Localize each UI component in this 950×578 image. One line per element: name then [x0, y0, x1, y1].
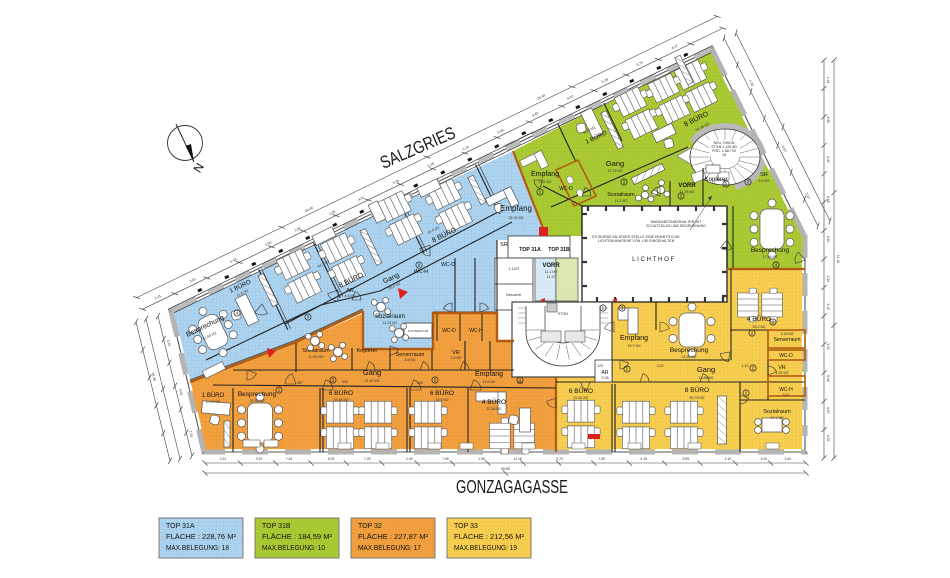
svg-text:TOP 31A: TOP 31A: [166, 523, 195, 530]
svg-text:3.67: 3.67: [783, 393, 790, 397]
svg-text:FLÄCHE : 184,59 M²: FLÄCHE : 184,59 M²: [262, 533, 333, 541]
svg-text:26.2 M2: 26.2 M2: [753, 325, 766, 329]
svg-text:MAX.BELEGUNG: 19: MAX.BELEGUNG: 19: [454, 545, 517, 552]
svg-text:Empfang: Empfang: [500, 204, 532, 213]
svg-text:FLÄCHE : 228,76 M²: FLÄCHE : 228,76 M²: [166, 533, 237, 541]
svg-text:WC-D: WC-D: [779, 353, 793, 359]
svg-text:3.10: 3.10: [826, 303, 830, 310]
svg-text:21.89 M2: 21.89 M2: [487, 407, 502, 411]
svg-text:4 BÜRO: 4 BÜRO: [482, 398, 506, 406]
svg-text:11.24 M2: 11.24 M2: [383, 321, 398, 325]
svg-text:3.70: 3.70: [556, 457, 563, 461]
svg-text:4 BÜRO: 4 BÜRO: [747, 315, 771, 323]
svg-text:59.85: 59.85: [501, 467, 510, 471]
svg-text:SR: SR: [760, 172, 768, 178]
svg-text:4.85: 4.85: [826, 196, 830, 203]
svg-text:1.8 M2: 1.8 M2: [451, 356, 462, 360]
svg-text:TOP 33: TOP 33: [454, 523, 478, 530]
svg-text:Sozialraum: Sozialraum: [763, 409, 791, 415]
svg-text:7.08: 7.08: [442, 457, 449, 461]
svg-text:32.9 M2: 32.9 M2: [436, 398, 449, 402]
svg-text:13.78 M2: 13.78 M2: [608, 169, 623, 173]
svg-text:33.84 M2: 33.84 M2: [334, 398, 349, 402]
svg-text:Besprechung: Besprechung: [751, 247, 790, 254]
svg-text:10.19 M2: 10.19 M2: [206, 400, 221, 404]
svg-text:WC-D: WC-D: [441, 262, 455, 268]
svg-text:17.7 M2: 17.7 M2: [771, 416, 784, 420]
svg-text:3.20: 3.20: [657, 364, 664, 368]
svg-text:240: 240: [417, 381, 423, 385]
svg-text:FLÄCHE : 212,56 M²: FLÄCHE : 212,56 M²: [454, 533, 525, 541]
svg-text:Sozialraum: Sozialraum: [375, 314, 405, 320]
svg-text:3.40: 3.40: [785, 457, 792, 461]
svg-text:VORR: VORR: [678, 183, 696, 189]
svg-text:1 BÜRO: 1 BÜRO: [202, 392, 225, 399]
svg-text:31.84 M2: 31.84 M2: [574, 396, 589, 400]
svg-text:3.08: 3.08: [602, 376, 609, 380]
svg-text:6 BÜRO: 6 BÜRO: [430, 389, 454, 397]
svg-text:21.87 M2: 21.87 M2: [365, 379, 380, 383]
svg-text:Gang: Gang: [606, 159, 624, 168]
svg-text:11.8 M2: 11.8 M2: [483, 380, 496, 384]
svg-text:WC-H: WC-H: [469, 328, 483, 334]
svg-text:LICHTHOF: LICHTHOF: [632, 256, 676, 263]
svg-text:2.26: 2.26: [826, 276, 830, 283]
svg-text:MAX.BELEGUNG: 10: MAX.BELEGUNG: 10: [262, 545, 325, 552]
svg-text:6 BÜRO: 6 BÜRO: [569, 387, 593, 395]
svg-text:14.18: 14.18: [513, 457, 522, 461]
svg-text:17.88 M2: 17.88 M2: [763, 255, 778, 259]
svg-text:Empfang: Empfang: [531, 171, 559, 178]
svg-text:18: 18: [722, 153, 726, 157]
svg-text:4.80: 4.80: [826, 236, 830, 243]
svg-text:Besprechung: Besprechung: [238, 391, 277, 398]
svg-text:Gang: Gang: [363, 368, 381, 377]
svg-text:SR: SR: [500, 242, 508, 248]
svg-text:15.7 M2: 15.7 M2: [628, 344, 641, 348]
svg-text:10.59 M2: 10.59 M2: [309, 355, 324, 359]
svg-text:TOP 31B: TOP 31B: [262, 523, 291, 530]
svg-text:11.2 M2: 11.2 M2: [615, 199, 628, 203]
svg-text:Empfang: Empfang: [620, 335, 648, 342]
svg-text:50.78 M2: 50.78 M2: [690, 396, 705, 400]
svg-text:5.24: 5.24: [826, 375, 830, 382]
svg-text:5.4 M2: 5.4 M2: [759, 179, 770, 183]
svg-text:Gang: Gang: [697, 365, 715, 374]
svg-text:WC-D: WC-D: [442, 328, 456, 334]
svg-text:7.25: 7.25: [364, 457, 371, 461]
svg-text:6.10: 6.10: [761, 457, 768, 461]
svg-text:387: 387: [297, 381, 303, 385]
svg-text:24.96 M2: 24.96 M2: [682, 355, 697, 359]
svg-text:1.1497: 1.1497: [509, 267, 520, 271]
svg-text:MAX.BELEGUNG: 18: MAX.BELEGUNG: 18: [166, 545, 229, 552]
svg-text:Kopierer: Kopierer: [357, 348, 378, 354]
svg-text:GONZAGAGASSE: GONZAGAGASSE: [456, 477, 568, 497]
svg-text:LUFTERRAUM: LUFTERRAUM: [408, 329, 429, 333]
svg-text:VORR: VORR: [542, 263, 560, 269]
svg-text:Sozialraum: Sozialraum: [302, 348, 330, 354]
svg-text:4.95: 4.95: [826, 116, 830, 123]
svg-text:WC-H: WC-H: [414, 269, 428, 275]
svg-text:TOP 31B: TOP 31B: [548, 247, 570, 253]
svg-text:SCHUTZGLAS UND BEGRUENUNG: SCHUTZGLAS UND BEGRUENUNG: [646, 224, 706, 228]
svg-text:3.50: 3.50: [826, 343, 830, 350]
svg-text:Besucher: Besucher: [506, 293, 522, 297]
svg-text:1.39 M2: 1.39 M2: [776, 371, 789, 375]
svg-text:5.40: 5.40: [826, 156, 830, 163]
svg-text:STGN: STGN: [558, 312, 568, 316]
svg-text:21.1 M2: 21.1 M2: [539, 180, 552, 184]
svg-text:1.14: 1.14: [826, 77, 830, 84]
svg-text:WC-D: WC-D: [559, 186, 573, 192]
svg-text:1.10: 1.10: [725, 457, 732, 461]
svg-text:3.39 M2: 3.39 M2: [781, 332, 794, 336]
svg-text:13.86 M2: 13.86 M2: [699, 376, 714, 380]
svg-text:MAX.BELEGUNG: 17: MAX.BELEGUNG: 17: [358, 545, 421, 552]
svg-text:6 BÜRO: 6 BÜRO: [329, 389, 353, 397]
svg-text:Serverraum: Serverraum: [773, 337, 800, 343]
svg-text:2.40: 2.40: [406, 457, 413, 461]
svg-text:Empfang: Empfang: [475, 371, 503, 378]
svg-text:FLÄCHE : 227,87 M²: FLÄCHE : 227,87 M²: [358, 533, 429, 541]
svg-text:4.25: 4.25: [826, 435, 830, 442]
svg-text:5.02: 5.02: [328, 457, 335, 461]
svg-text:7.09: 7.09: [598, 457, 605, 461]
svg-text:11.16: 11.16: [836, 255, 840, 263]
svg-text:2.12: 2.12: [220, 457, 227, 461]
svg-text:120: 120: [597, 364, 603, 368]
svg-text:4.5 M2: 4.5 M2: [405, 358, 416, 362]
svg-text:TOP 31A: TOP 31A: [519, 247, 541, 253]
svg-text:4.4 M2: 4.4 M2: [345, 294, 356, 298]
svg-text:Sozialraum: Sozialraum: [607, 192, 635, 198]
svg-text:26.94 M2: 26.94 M2: [509, 216, 524, 220]
svg-text:3.10: 3.10: [256, 457, 263, 461]
svg-text:7.54: 7.54: [286, 457, 293, 461]
svg-text:TOP 32: TOP 32: [358, 523, 382, 530]
svg-text:Besprechung: Besprechung: [670, 347, 709, 354]
svg-text:18.38 M2: 18.38 M2: [250, 399, 265, 403]
svg-text:1.10: 1.10: [742, 364, 749, 368]
svg-text:5.95: 5.95: [682, 457, 689, 461]
svg-text:302: 302: [342, 380, 348, 384]
svg-text:4.20: 4.20: [826, 407, 830, 414]
svg-text:1.95: 1.95: [478, 457, 485, 461]
svg-text:11.17: 11.17: [547, 275, 556, 279]
svg-text:LICHTRAUMHOEHE VON 1.90 EINGEH: LICHTRAUMHOEHE VON 1.90 EINGEHALTEN: [598, 239, 675, 243]
svg-text:8 BÜRO: 8 BÜRO: [685, 386, 709, 394]
svg-text:4.15: 4.15: [640, 457, 647, 461]
svg-text:11.1 M2: 11.1 M2: [545, 270, 558, 274]
